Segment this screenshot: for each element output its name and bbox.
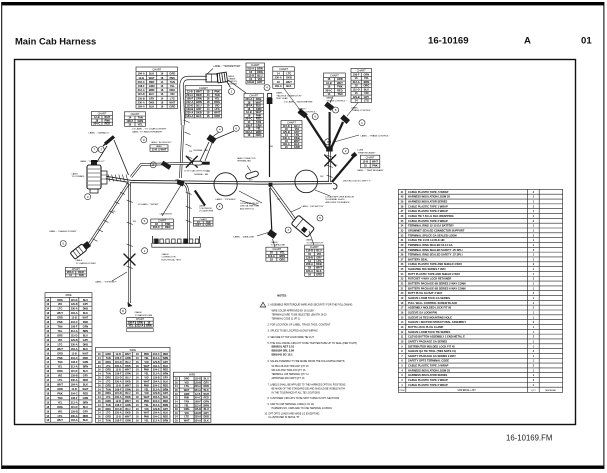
svg-text:VIO: VIO <box>184 412 188 415</box>
svg-text:BLK: BLK <box>163 412 168 415</box>
svg-text:115-D: 115-D <box>115 392 122 395</box>
svg-text:115-D: 115-D <box>194 378 201 381</box>
svg-text:DKB: DKB <box>203 416 209 419</box>
svg-text:WHT: WHT <box>144 396 150 399</box>
svg-text:GRY: GRY <box>83 410 89 413</box>
svg-text:PNK: PNK <box>57 393 62 396</box>
svg-text:GRD: GRD <box>105 416 111 419</box>
svg-text:ORG: ORG <box>57 370 63 373</box>
svg-text:12-B: 12-B <box>115 416 121 419</box>
svg-text:VIO: VIO <box>58 303 62 306</box>
svg-text:BLK: BLK <box>163 396 168 399</box>
svg-text:312-A: 312-A <box>194 404 201 407</box>
svg-text:WHT: WHT <box>57 348 63 351</box>
svg-text:115-D: 115-D <box>115 377 122 380</box>
svg-text:108-F: 108-F <box>115 373 122 376</box>
svg-text:GRD: GRD <box>57 317 63 320</box>
svg-text:312-A: 312-A <box>71 330 78 333</box>
svg-text:184-A: 184-A <box>194 420 201 423</box>
svg-text:129-B: 129-B <box>71 410 78 413</box>
svg-text:12-B: 12-B <box>115 384 121 387</box>
svg-text:WHT: WHT <box>83 388 89 391</box>
svg-text:16-10169.FM: 16-10169.FM <box>506 434 552 443</box>
svg-text:204-C: 204-C <box>71 357 78 360</box>
svg-text:GRN: GRN <box>203 401 209 404</box>
svg-text:GRY: GRY <box>83 375 89 378</box>
svg-text:312-A: 312-A <box>71 401 78 404</box>
svg-text:BLU: BLU <box>83 406 88 409</box>
svg-text:312-A: 312-A <box>153 404 160 407</box>
svg-text:129-B: 129-B <box>71 339 78 342</box>
svg-text:WHT: WHT <box>83 317 89 320</box>
svg-text:WHT: WHT <box>203 393 209 396</box>
svg-text:BLU: BLU <box>125 361 130 364</box>
svg-text:LTG: LTG <box>106 365 111 368</box>
svg-text:GRY: GRY <box>204 412 210 415</box>
svg-text:184-A: 184-A <box>71 384 78 387</box>
svg-text:LTG: LTG <box>184 416 189 419</box>
svg-text:DKB: DKB <box>125 412 131 415</box>
svg-text:312-A: 312-A <box>153 388 160 391</box>
svg-text:TAN: TAN <box>58 326 63 329</box>
svg-text:115-D: 115-D <box>71 370 78 373</box>
svg-text:230-A: 230-A <box>71 308 78 311</box>
svg-text:WHT: WHT <box>144 380 150 383</box>
svg-text:108-F: 108-F <box>71 397 78 400</box>
svg-text:115-D: 115-D <box>71 335 78 338</box>
svg-text:BLK: BLK <box>163 365 168 368</box>
svg-text:12-B: 12-B <box>71 352 77 355</box>
svg-text:GRY: GRY <box>83 303 89 306</box>
svg-text:WIRE: WIRE <box>130 349 137 352</box>
svg-text:204-C: 204-C <box>153 353 160 356</box>
svg-text:ORG: ORG <box>105 361 111 364</box>
svg-text:DKB: DKB <box>125 396 131 399</box>
svg-text:184-A: 184-A <box>71 348 78 351</box>
svg-text:Main Cab Harness: Main Cab Harness <box>15 36 96 47</box>
svg-text:GRN: GRN <box>83 361 89 364</box>
svg-text:BRN: BRN <box>203 404 209 407</box>
svg-text:RED: RED <box>163 369 168 372</box>
svg-text:YEL: YEL <box>58 366 63 369</box>
svg-text:LTG: LTG <box>184 385 189 388</box>
svg-text:115-D: 115-D <box>71 406 78 409</box>
svg-text:RED: RED <box>163 384 168 387</box>
svg-text:BLK: BLK <box>83 312 88 315</box>
svg-text:108-F: 108-F <box>115 388 122 391</box>
svg-text:129-B: 129-B <box>153 392 160 395</box>
svg-text:12-B: 12-B <box>115 400 121 403</box>
svg-text:YEL: YEL <box>58 401 63 404</box>
svg-text:115-D: 115-D <box>115 408 122 411</box>
svg-text:LUBE: LUBE <box>358 150 364 152</box>
svg-text:WHT: WHT <box>83 352 89 355</box>
svg-text:108-F: 108-F <box>71 326 78 329</box>
svg-text:129-B: 129-B <box>71 303 78 306</box>
svg-text:DKB: DKB <box>125 365 131 368</box>
svg-text:1. ASSEMBLE PER/TORQUE WIRE A: 1. ASSEMBLE PER/TORQUE WIRE AND SECURITY… <box>268 304 354 307</box>
svg-text:ORG: ORG <box>184 408 190 411</box>
svg-text:ORG: ORG <box>184 378 190 381</box>
svg-text:GRN: GRN <box>125 388 131 391</box>
svg-text:230-A: 230-A <box>115 380 122 383</box>
svg-text:VIO: VIO <box>144 392 148 395</box>
svg-text:12-B: 12-B <box>115 353 121 356</box>
svg-text:204-C: 204-C <box>194 397 201 400</box>
svg-text:GRY: GRY <box>163 392 169 395</box>
svg-text:PNK: PNK <box>144 353 149 356</box>
svg-text:RED: RED <box>204 397 209 400</box>
svg-text:BLU: BLU <box>125 408 130 411</box>
svg-text:TAN: TAN <box>58 397 63 400</box>
svg-text:108-F: 108-F <box>195 224 202 226</box>
svg-text:108-F: 108-F <box>115 404 122 407</box>
svg-text:6. SALES ASSEMBLY TO BE MADE: 6. SALES ASSEMBLY TO BE MADE FROM THE FO… <box>268 360 346 363</box>
svg-text:230-A: 230-A <box>115 365 122 368</box>
svg-text:230-A: 230-A <box>194 385 201 388</box>
svg-text:2. FOR LOCATION OF LABEL, TRA: 2. FOR LOCATION OF LABEL, TRACK TAGS, CO… <box>268 323 331 326</box>
svg-text:184-A: 184-A <box>153 412 160 415</box>
svg-text:RED: RED <box>163 353 168 356</box>
svg-text:GRD: GRD <box>184 393 190 396</box>
svg-text:BLU: BLU <box>83 335 88 338</box>
svg-text:ORG: ORG <box>57 335 63 338</box>
svg-text:YEL: YEL <box>144 388 149 391</box>
svg-text:YEL: YEL <box>184 404 189 407</box>
svg-text:CONTROL: CONTROL <box>228 81 237 83</box>
svg-text:184-A: 184-A <box>194 389 201 392</box>
svg-text:QTY: QTY <box>531 390 536 392</box>
svg-text:230-A: 230-A <box>194 416 201 419</box>
svg-text:WHT: WHT <box>57 384 63 387</box>
svg-text:TAN: TAN <box>58 361 63 364</box>
svg-text:3. SPLICE TO BE LOCATED ALONG: 3. SPLICE TO BE LOCATED ALONG WIRING <box>268 330 318 333</box>
svg-text:ORG: ORG <box>105 392 111 395</box>
svg-text:CHART: CHART <box>158 220 167 223</box>
svg-text:PNK: PNK <box>57 321 62 324</box>
svg-text:BLU: BLU <box>83 299 88 302</box>
svg-text:TAN: TAN <box>106 404 111 407</box>
svg-text:184-A: 184-A <box>153 396 160 399</box>
svg-text:5. THE FOLLOWING CIRCUIT TO B: 5. THE FOLLOWING CIRCUIT TO BE TIGHTEN/T… <box>268 342 358 345</box>
svg-text:DKB: DKB <box>83 379 89 382</box>
svg-text:204-C: 204-C <box>153 400 160 403</box>
svg-text:BRN: BRN <box>163 404 169 407</box>
svg-text:PNK: PNK <box>144 416 149 419</box>
svg-text:GRD: GRD <box>105 384 111 387</box>
svg-text:RED: RED <box>83 357 88 360</box>
svg-text:PNK: PNK <box>144 384 149 387</box>
svg-text:YEL: YEL <box>144 420 149 423</box>
svg-text:12-B: 12-B <box>195 393 201 396</box>
svg-text:204-C: 204-C <box>153 369 160 372</box>
svg-text:BRN: BRN <box>83 330 89 333</box>
svg-text:BRN: BRN <box>163 357 169 360</box>
svg-text:ORG: ORG <box>57 299 63 302</box>
svg-text:GRN: GRN <box>83 326 89 329</box>
svg-text:CONNECTOR: CONNECTOR <box>162 257 176 259</box>
svg-text:ITEM: ITEM <box>400 390 405 392</box>
svg-text:12-B: 12-B <box>115 369 121 372</box>
svg-text:GRY: GRY <box>163 361 169 364</box>
svg-text:DKB: DKB <box>125 380 131 383</box>
svg-text:BLU: BLU <box>125 377 130 380</box>
svg-text:PNK: PNK <box>144 369 149 372</box>
svg-text:TAN: TAN <box>106 388 111 391</box>
svg-text:115-D: 115-D <box>115 361 122 364</box>
svg-text:312-A: 312-A <box>153 357 160 360</box>
svg-text:LTG: LTG <box>106 380 111 383</box>
svg-text:12-B: 12-B <box>71 317 77 320</box>
svg-text:GRN: GRN <box>125 357 131 360</box>
svg-text:12-B: 12-B <box>71 388 77 391</box>
svg-text:01: 01 <box>581 36 592 47</box>
svg-text:230-A: 230-A <box>71 343 78 346</box>
svg-text:WHT: WHT <box>57 312 63 315</box>
svg-text:BRN: BRN <box>163 388 169 391</box>
svg-text:TAN: TAN <box>184 401 189 404</box>
svg-text:230-A: 230-A <box>71 415 78 418</box>
svg-text:4. SECURE AT TOP LOAD WIRE TI: 4. SECURE AT TOP LOAD WIRE TIE CUT <box>268 336 315 339</box>
svg-text:GRN: GRN <box>125 404 131 407</box>
svg-text:184-A: 184-A <box>71 419 78 422</box>
svg-text:312-A: 312-A <box>71 366 78 369</box>
svg-text:GRN: GRN <box>83 397 89 400</box>
svg-text:GRN: GRN <box>125 373 131 376</box>
svg-text:108-F: 108-F <box>71 361 78 364</box>
svg-text:BLK: BLK <box>83 384 88 387</box>
svg-text:BLK: BLK <box>163 380 168 383</box>
svg-text:TAN: TAN <box>106 373 111 376</box>
svg-text:LTG: LTG <box>58 308 63 311</box>
svg-text:VIO: VIO <box>144 377 148 380</box>
svg-text:184-A: 184-A <box>153 365 160 368</box>
svg-text:WHT: WHT <box>57 419 63 422</box>
svg-text:BLU: BLU <box>204 378 209 381</box>
svg-text:BRN: BRN <box>163 420 169 423</box>
svg-text:TAN: TAN <box>106 357 111 360</box>
svg-text:BLK: BLK <box>204 420 209 423</box>
svg-text:WHT: WHT <box>125 384 131 387</box>
svg-text:YEL: YEL <box>144 357 149 360</box>
svg-text:129-B: 129-B <box>194 381 201 384</box>
svg-text:129-B: 129-B <box>153 361 160 364</box>
svg-text:129-B: 129-B <box>153 377 160 380</box>
svg-text:LTG: LTG <box>106 396 111 399</box>
svg-text:WHT: WHT <box>125 416 131 419</box>
svg-text:GRN: GRN <box>206 224 211 226</box>
svg-text:YEL: YEL <box>144 373 149 376</box>
svg-text:WHT: WHT <box>144 365 150 368</box>
svg-text:LTG: LTG <box>106 412 111 415</box>
svg-text:VIO: VIO <box>144 361 148 364</box>
svg-text:204-C: 204-C <box>71 393 78 396</box>
svg-text:YEL: YEL <box>58 330 63 333</box>
svg-text:TAN: TAN <box>106 420 111 423</box>
svg-text:312-A: 312-A <box>153 373 160 376</box>
svg-text:GRY: GRY <box>163 377 169 380</box>
svg-text:LTG: LTG <box>58 415 63 418</box>
svg-text:WHT: WHT <box>184 389 190 392</box>
svg-text:"TO KEYSWITCH": "TO KEYSWITCH" <box>306 242 324 244</box>
svg-text:RED: RED <box>83 321 88 324</box>
svg-text:MATERIAL LIST: MATERIAL LIST <box>458 389 477 392</box>
svg-text:129-B: 129-B <box>153 408 160 411</box>
svg-text:184-A: 184-A <box>71 312 78 315</box>
svg-text:PNK: PNK <box>184 397 189 400</box>
svg-text:DKB: DKB <box>83 308 89 311</box>
svg-text:LTG: LTG <box>58 343 63 346</box>
svg-text:BLK: BLK <box>204 389 209 392</box>
svg-text:VIO: VIO <box>58 339 62 342</box>
svg-text:DKB: DKB <box>83 343 89 346</box>
svg-text:204-C: 204-C <box>153 416 160 419</box>
svg-text:WHT: WHT <box>125 353 131 356</box>
svg-text:115-D: 115-D <box>194 408 201 411</box>
svg-text:TO EXTERIOR: TO EXTERIOR <box>199 208 212 210</box>
svg-text:CHART: CHART <box>136 318 145 321</box>
svg-text:115-D: 115-D <box>71 299 78 302</box>
svg-text:BRN: BRN <box>163 373 169 376</box>
svg-text:129-B: 129-B <box>194 412 201 415</box>
svg-text:BOX PWR: BOX PWR <box>228 84 238 86</box>
svg-text:230-A: 230-A <box>115 396 122 399</box>
svg-text:16-10169: 16-10169 <box>428 36 469 47</box>
svg-text:LTG: LTG <box>58 379 63 382</box>
svg-text:PNK: PNK <box>144 400 149 403</box>
svg-text:GRD: GRD <box>57 352 63 355</box>
svg-text:184-A: 184-A <box>153 380 160 383</box>
svg-text:VIO: VIO <box>58 410 62 413</box>
svg-text:BRN: BRN <box>83 401 89 404</box>
svg-text:108-F: 108-F <box>194 401 201 404</box>
svg-text:230-A: 230-A <box>71 379 78 382</box>
svg-text:108-F: 108-F <box>115 357 122 360</box>
svg-text:ORG: ORG <box>57 406 63 409</box>
svg-text:204-C: 204-C <box>71 321 78 324</box>
svg-text:GRY: GRY <box>83 339 89 342</box>
svg-text:A: A <box>524 36 531 47</box>
svg-text:129-B: 129-B <box>71 375 78 378</box>
svg-text:312-A: 312-A <box>153 420 160 423</box>
svg-text:ORG: ORG <box>105 408 111 411</box>
svg-text:BLK: BLK <box>83 348 88 351</box>
svg-text:WHT: WHT <box>184 420 190 423</box>
svg-text:230-A: 230-A <box>115 412 122 415</box>
svg-text:GRD: GRD <box>105 400 111 403</box>
svg-text:(NUT/BLOCK) NO SHIFT "T": (NUT/BLOCK) NO SHIFT "T" <box>343 180 371 182</box>
svg-text:RED: RED <box>163 416 168 419</box>
svg-text:ORG: ORG <box>105 377 111 380</box>
svg-text:WIRE: WIRE <box>189 373 196 376</box>
svg-text:PNK: PNK <box>57 357 62 360</box>
svg-text:BLU: BLU <box>83 370 88 373</box>
svg-text:WHT: WHT <box>125 369 131 372</box>
svg-text:BLU: BLU <box>204 408 209 411</box>
svg-text:BLU: BLU <box>125 392 130 395</box>
svg-text:DKB: DKB <box>83 415 89 418</box>
svg-text:108-F: 108-F <box>115 420 122 423</box>
svg-text:GRY: GRY <box>163 408 169 411</box>
svg-text:RED: RED <box>83 393 88 396</box>
svg-text:RED: RED <box>163 400 168 403</box>
svg-text:WHT: WHT <box>144 412 150 415</box>
svg-text:WIRE: WIRE <box>65 294 72 297</box>
svg-text:BRN: BRN <box>83 366 89 369</box>
svg-text:GRD: GRD <box>105 353 111 356</box>
svg-text:GRY: GRY <box>204 381 210 384</box>
svg-text:GRD: GRD <box>57 388 63 391</box>
svg-text:GRD: GRD <box>105 369 111 372</box>
svg-text:BLK: BLK <box>83 419 88 422</box>
svg-text:GRN: GRN <box>125 420 131 423</box>
svg-text:204-C: 204-C <box>153 384 160 387</box>
svg-text:VIO: VIO <box>184 381 188 384</box>
svg-text:DKB: DKB <box>203 385 209 388</box>
svg-text:YEL: YEL <box>144 404 149 407</box>
svg-text:VIO: VIO <box>144 408 148 411</box>
svg-text:WHT: WHT <box>125 400 131 403</box>
svg-text:VIO: VIO <box>58 375 62 378</box>
